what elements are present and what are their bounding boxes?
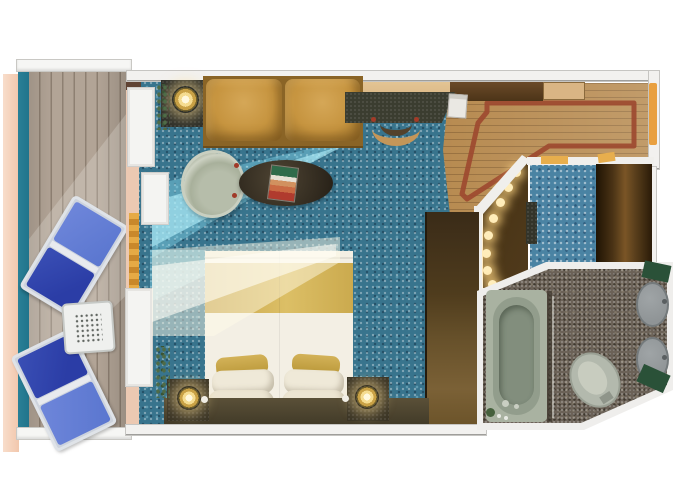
table-lamp-sofa [172, 86, 199, 113]
desk-stool [372, 112, 420, 146]
wall-right-mid [647, 166, 657, 268]
plant-lower [155, 346, 170, 398]
wall-bottom [125, 424, 487, 436]
bedside-cup-right [342, 395, 349, 402]
floor-plan [0, 0, 680, 486]
desk-phone [447, 93, 468, 118]
bedside-cup-left [201, 396, 208, 403]
stool-foot-right [414, 117, 419, 122]
wardrobe [425, 212, 479, 428]
desk-stool-shadow [380, 112, 412, 136]
bedside-lamp-left [177, 386, 201, 410]
stool-foot-left [371, 117, 376, 122]
magazine [267, 164, 299, 202]
shelf-cabinet-tan [543, 82, 585, 100]
armchair-accent-1 [234, 163, 239, 168]
plant-upper [156, 84, 170, 130]
sofa [203, 76, 363, 148]
armchair-accent-2 [232, 193, 237, 198]
sofa-cushion-left [206, 79, 282, 141]
entry-door [649, 83, 657, 145]
bedside-lamp-right [355, 385, 379, 409]
